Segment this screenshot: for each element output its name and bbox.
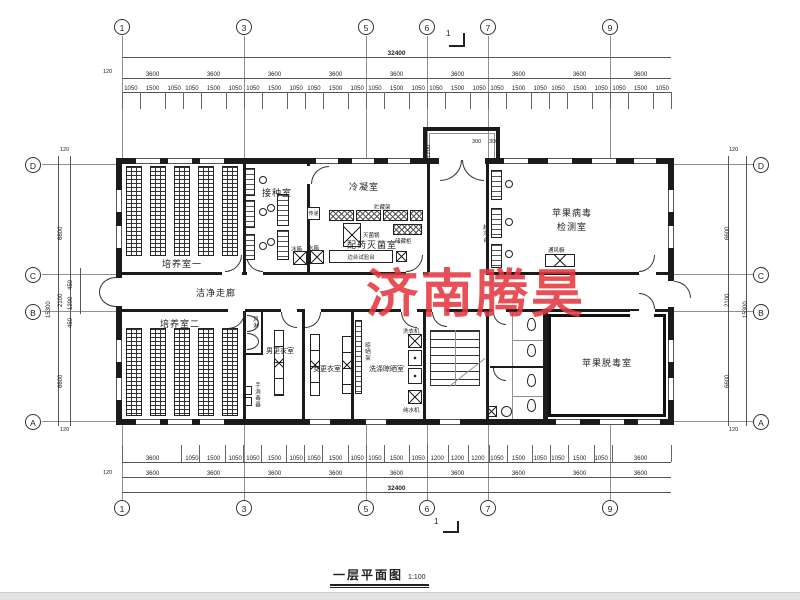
window <box>600 419 624 425</box>
dim-label: 1200 <box>427 456 447 463</box>
water-purifier <box>408 390 422 404</box>
dim-label: 1050 <box>592 456 610 463</box>
toilet <box>527 374 536 387</box>
wall-corridor-south <box>655 309 668 312</box>
dim-label: 3600 <box>183 72 244 79</box>
door-opening <box>307 166 310 184</box>
stall-partition <box>512 368 513 419</box>
dim-tick: 1050 <box>244 92 262 109</box>
dim-label: 1050 <box>409 456 427 463</box>
dim-tick: 1050 <box>610 92 628 109</box>
dim-label: 3600 <box>549 72 610 79</box>
dim-tick: 1500 <box>567 92 592 109</box>
corridor-west-door-leaf <box>99 277 116 292</box>
dim-edge: 120 <box>103 69 112 75</box>
dim-tick: 1050 <box>165 92 183 109</box>
window <box>634 158 656 164</box>
window <box>366 419 386 425</box>
dim-label: 3600 <box>244 471 305 478</box>
dim-label: 1050 <box>549 456 567 463</box>
water-tank-label: 水箱 <box>308 244 319 252</box>
dim-seg: 6600 <box>58 375 64 388</box>
room-label-virus2: 检测室 <box>557 220 587 233</box>
sanitizer-box <box>245 386 252 395</box>
door-opening <box>630 311 654 318</box>
wall-partition <box>261 311 263 355</box>
dim-tick: 1050 <box>366 92 384 109</box>
room-label-culture1: 培养室一 <box>162 257 202 270</box>
dim-tick: 1500 <box>506 92 531 109</box>
window <box>136 419 160 425</box>
grid-line <box>42 421 116 422</box>
fridge <box>293 251 307 265</box>
grid-bubble-col: 3 <box>236 19 252 35</box>
dim-label: 1500 <box>506 456 531 463</box>
bench <box>245 168 255 196</box>
drawing-title: 一层平面图 <box>333 566 403 583</box>
dim-line-left-sub <box>80 268 81 314</box>
dim-label: 3600 <box>427 72 488 79</box>
dim-label: 3600 <box>122 456 183 463</box>
grid-bubble-col: 6 <box>419 500 435 516</box>
entrance-door-leaf <box>440 160 462 181</box>
dim-tick: 1050 <box>305 92 323 109</box>
urinal <box>486 406 497 417</box>
equipment-box <box>408 350 422 366</box>
dim-porch-depth: 1200 <box>426 145 432 158</box>
grid-bubble-row: D <box>25 157 41 173</box>
window <box>638 419 660 425</box>
grid-bubble-col: 1 <box>114 19 130 35</box>
room-label-inoculation: 接种室 <box>262 186 292 199</box>
dim-label: 1050 <box>226 456 244 463</box>
clean-bench <box>491 170 502 200</box>
dim-label: 3600 <box>610 456 671 463</box>
dim-label: 1050 <box>305 456 323 463</box>
dim-label: 3600 <box>305 72 366 79</box>
stool <box>259 176 267 184</box>
drawing-scale: 1:100 <box>408 574 426 581</box>
bench <box>277 230 289 260</box>
drawing-title-block: 一层平面图 1:100 <box>330 566 429 588</box>
air-shower-label: 风淋 <box>251 316 259 329</box>
dim-row-bays-top: 360036003600360036003600360036003600 <box>122 78 671 79</box>
window <box>440 419 460 425</box>
window <box>136 158 160 164</box>
grid-line <box>42 164 116 165</box>
dim-edge: 120 <box>60 147 69 153</box>
dim-total-height: 15300 <box>743 301 749 318</box>
dim-label: 1050 <box>531 456 549 463</box>
window <box>352 158 374 164</box>
door-leaf <box>305 312 321 328</box>
window <box>116 190 122 212</box>
dim-label: 1050 <box>244 456 262 463</box>
porch-inner-line <box>429 133 495 134</box>
dim-seg: 2100 <box>725 294 731 307</box>
grid-bubble-col: 1 <box>114 500 130 516</box>
dim-label: 1200 <box>447 456 467 463</box>
room-label-virus1: 苹果病毒 <box>552 206 592 219</box>
dim-tick: 1050 <box>653 92 671 109</box>
door-leaf <box>225 255 242 272</box>
culture-rack <box>174 328 190 416</box>
culture-rack <box>150 328 166 416</box>
bench <box>245 234 255 260</box>
window <box>668 340 674 362</box>
wall-partition <box>486 311 489 419</box>
wall-partition <box>244 353 263 355</box>
door-leaf <box>281 312 297 328</box>
grid-bubble-col: 9 <box>602 19 618 35</box>
grid-line <box>674 164 753 165</box>
grid-line <box>674 274 753 275</box>
grid-bubble-col: 7 <box>480 19 496 35</box>
window <box>200 158 224 164</box>
storage-rack <box>356 210 381 221</box>
section-mark-flag <box>449 45 465 47</box>
room-label-laundry: 洗涤晾晒室 <box>369 364 404 374</box>
dim-label: 3600 <box>610 72 671 79</box>
dim-label: 1500 <box>201 456 226 463</box>
dim-edge: 120 <box>729 427 738 433</box>
window <box>668 378 674 400</box>
grid-bubble-row: A <box>25 414 41 430</box>
window <box>548 158 572 164</box>
sink <box>501 406 512 417</box>
clean-bench <box>491 208 502 238</box>
dim-tick: 1050 <box>409 92 427 109</box>
room-label-women: 女更衣室 <box>313 364 341 374</box>
dim-tick: 1050 <box>470 92 488 109</box>
wall-partition <box>423 311 426 419</box>
door-opening <box>116 278 122 306</box>
dim-sub: 1200 <box>68 297 74 310</box>
dim-label: 1050 <box>348 456 366 463</box>
grid-bubble-row: B <box>25 304 41 320</box>
window <box>668 190 674 212</box>
dim-label: 3600 <box>549 471 610 478</box>
culture-rack <box>174 166 190 256</box>
stool <box>259 208 267 216</box>
window <box>168 158 192 164</box>
dim-seg: 2100 <box>58 294 64 307</box>
pass-window: 传递 <box>307 207 320 220</box>
storage-rack-label: 贮藏架 <box>374 203 391 211</box>
dim-tick: 1050 <box>183 92 201 109</box>
dim-total-width: 32400 <box>386 485 406 492</box>
door-leaf <box>311 166 329 184</box>
dim-tick: 1500 <box>262 92 287 109</box>
dim-label: 1500 <box>262 456 287 463</box>
corridor-west-door-leaf <box>99 292 116 307</box>
window <box>316 158 338 164</box>
clean-bench-label: 超净台 <box>481 224 489 244</box>
toilet-wall <box>490 366 543 368</box>
door-leaf <box>493 368 506 381</box>
dim-label: 3600 <box>366 471 427 478</box>
door-leaf <box>639 255 655 272</box>
grid-line <box>674 421 753 422</box>
dim-tick: 1500 <box>140 92 165 109</box>
grid-line <box>42 274 116 275</box>
window <box>116 226 122 248</box>
dim-edge: 120 <box>729 147 738 153</box>
dim-tick: 1500 <box>323 92 348 109</box>
dim-label: 1500 <box>384 456 409 463</box>
stair-stringer <box>455 330 456 386</box>
toilet <box>527 344 536 357</box>
dim-sub: 450 <box>68 318 74 328</box>
stall-partition <box>513 340 543 341</box>
page-bottom-strip <box>0 592 800 600</box>
storage-rack <box>329 210 354 221</box>
dim-row-bays-bottom: 360036003600360036003600360036003600 <box>122 477 671 478</box>
stool <box>267 238 275 246</box>
fridge-label: 冰箱 <box>291 245 302 253</box>
dim-label: 3600 <box>610 471 671 478</box>
dim-line-left-inner <box>70 156 71 426</box>
drying-rack-label: 晾晒架 <box>363 342 371 362</box>
grid-bubble-row: C <box>25 267 41 283</box>
dim-porch-side: 300 <box>489 139 498 145</box>
dim-tick: 1050 <box>287 92 305 109</box>
dim-line-right-outer <box>746 156 747 426</box>
watermark: 济南腾昊 <box>366 252 586 327</box>
porch-wall <box>423 127 500 131</box>
wall-corridor-north <box>656 272 668 275</box>
dim-tick: 1050 <box>549 92 567 109</box>
storage-rack <box>410 210 423 221</box>
dim-label: 3600 <box>244 72 305 79</box>
culture-rack <box>198 166 214 256</box>
dim-line-total-top: 32400 <box>122 57 671 58</box>
window <box>592 158 616 164</box>
grid-bubble-col: 5 <box>358 19 374 35</box>
grid-bubble-col: 7 <box>480 500 496 516</box>
room-label-corridor: 洁净走廊 <box>196 286 236 299</box>
grid-line <box>674 311 753 312</box>
dim-sub: 450 <box>68 280 74 290</box>
window <box>310 419 330 425</box>
dim-tick: 1500 <box>201 92 226 109</box>
entrance-door-leaf <box>462 160 484 181</box>
stall-partition <box>513 396 543 397</box>
dim-row-small-bottom: 3600105015001050105015001050105015001050… <box>122 462 671 463</box>
bench <box>245 200 255 228</box>
locker <box>342 336 352 394</box>
dim-label: 3600 <box>122 471 183 478</box>
culture-rack <box>126 328 142 416</box>
door-leaf <box>639 293 655 309</box>
dim-tick: 1050 <box>122 92 140 109</box>
dim-tick: 1500 <box>628 92 653 109</box>
grid-bubble-col: 3 <box>236 500 252 516</box>
dim-total-width: 32400 <box>386 50 406 57</box>
window <box>556 419 580 425</box>
dim-total-height: 15300 <box>46 301 52 318</box>
stool <box>505 218 513 226</box>
culture-rack <box>222 328 238 416</box>
room-label-dispensing: 配药灭菌室 <box>347 238 397 251</box>
dim-label: 1200 <box>468 456 488 463</box>
dim-label: 1050 <box>287 456 305 463</box>
dim-edge: 120 <box>60 427 69 433</box>
equipment-box <box>408 368 422 384</box>
culture-rack <box>198 328 214 416</box>
dim-label: 3600 <box>488 72 549 79</box>
section-mark-label: 1 <box>446 29 450 38</box>
dim-tick: 1050 <box>348 92 366 109</box>
window <box>200 419 224 425</box>
stool <box>259 242 267 250</box>
wall-corridor-north <box>120 272 222 275</box>
section-mark-label: 1 <box>434 517 438 526</box>
wall-corridor-north <box>242 272 247 275</box>
dim-label: 1050 <box>183 456 201 463</box>
culture-rack <box>222 166 238 256</box>
dim-label: 3600 <box>305 471 366 478</box>
dim-tick: 1050 <box>488 92 506 109</box>
wall-corridor-south <box>120 309 228 312</box>
corridor-east-door-leaf <box>674 281 691 298</box>
porch-inner-line <box>494 133 495 158</box>
window <box>668 226 674 248</box>
dim-porch-side: 300 <box>472 139 481 145</box>
grid-bubble-col: 5 <box>358 500 374 516</box>
grid-bubble-row: D <box>753 157 769 173</box>
dim-tick: 1050 <box>592 92 610 109</box>
window <box>116 378 122 400</box>
window <box>388 158 410 164</box>
washer-label: 洗衣机 <box>403 327 420 335</box>
sanitizer-box <box>245 397 252 406</box>
dim-tick: 1500 <box>445 92 470 109</box>
section-mark-flag <box>443 531 459 533</box>
dim-label: 3600 <box>366 72 427 79</box>
dim-seg: 6600 <box>725 227 731 240</box>
culture-rack <box>150 166 166 256</box>
drying-rack <box>355 320 362 394</box>
storage-cabinet <box>393 224 422 235</box>
dim-tick: 1500 <box>384 92 409 109</box>
culture-rack <box>126 166 142 256</box>
window <box>504 158 528 164</box>
dim-label: 1050 <box>366 456 384 463</box>
floor-plan-drawing: 1 3 5 6 7 9 1 3 5 6 7 9 D C B A D C B A … <box>0 0 800 600</box>
window <box>116 340 122 362</box>
grid-bubble-row: C <box>753 267 769 283</box>
grid-line <box>42 311 116 312</box>
dim-line-total-bottom: 32400 <box>122 492 671 493</box>
dim-seg: 6600 <box>725 375 731 388</box>
grid-bubble-row: A <box>753 414 769 430</box>
storage-rack <box>383 210 408 221</box>
grid-bubble-row: B <box>753 304 769 320</box>
dim-label: 3600 <box>488 471 549 478</box>
dim-label: 3600 <box>122 72 183 79</box>
dim-tick: 1050 <box>531 92 549 109</box>
dim-label: 3600 <box>183 471 244 478</box>
dim-tick: 1050 <box>226 92 244 109</box>
dim-edge: 120 <box>103 470 112 476</box>
water-tank <box>310 250 324 264</box>
locker <box>274 330 284 396</box>
room-label-men: 男更衣室 <box>266 346 294 356</box>
sanitizer-label: 手消毒器 <box>253 382 261 408</box>
stool <box>505 180 513 188</box>
wall-corridor-south <box>245 309 281 312</box>
dim-label: 1500 <box>323 456 348 463</box>
air-shower-arc <box>247 333 259 350</box>
dim-label: 1050 <box>488 456 506 463</box>
toilet <box>527 399 536 412</box>
room-label-condensing: 冷凝室 <box>349 180 379 193</box>
dim-seg: 6600 <box>58 227 64 240</box>
storage-cabinet-label: 储藏柜 <box>395 237 412 245</box>
dim-tick: 1050 <box>427 92 445 109</box>
room-label-detox: 苹果脱毒室 <box>582 356 632 369</box>
window <box>168 419 192 425</box>
dim-label: 3600 <box>427 471 488 478</box>
grid-bubble-col: 6 <box>419 19 435 35</box>
washer <box>408 334 422 348</box>
stool <box>267 204 275 212</box>
dim-ticks-top: 1050150010501050150010501050150010501050… <box>122 92 672 109</box>
purifier-label: 纯水机 <box>403 406 420 414</box>
dim-label: 1500 <box>567 456 592 463</box>
grid-bubble-col: 9 <box>602 500 618 516</box>
